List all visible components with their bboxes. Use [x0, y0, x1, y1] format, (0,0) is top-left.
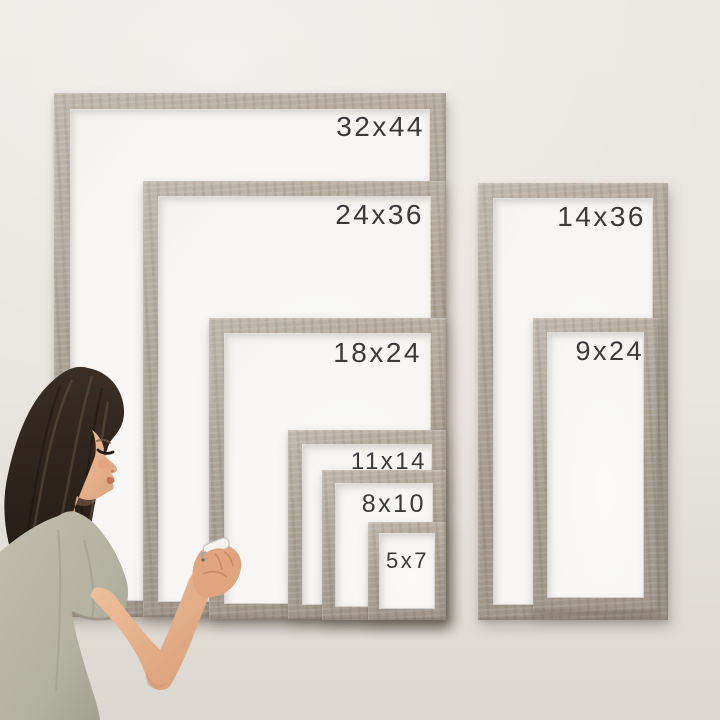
whiteboard-9x24: [548, 333, 643, 597]
size-label-24x36: 24x36: [335, 201, 424, 229]
product-photo-frame-size-comparison: 32x44 24x36 18x24 11x14 8x10 5x7 14x36 9…: [0, 0, 720, 720]
woman-writing: [0, 360, 250, 720]
nostril: [111, 470, 114, 473]
cheek-blush: [97, 459, 109, 469]
size-label-18x24: 18x24: [333, 339, 422, 367]
frame-9x24: 9x24: [533, 318, 658, 612]
marker-tip-contact: [201, 558, 204, 561]
size-label-8x10: 8x10: [362, 492, 426, 517]
size-label-5x7: 5x7: [386, 550, 429, 572]
size-label-14x36: 14x36: [557, 203, 646, 231]
size-label-9x24: 9x24: [575, 338, 644, 365]
size-label-32x44: 32x44: [336, 113, 425, 141]
frame-5x7: 5x7: [368, 522, 446, 620]
